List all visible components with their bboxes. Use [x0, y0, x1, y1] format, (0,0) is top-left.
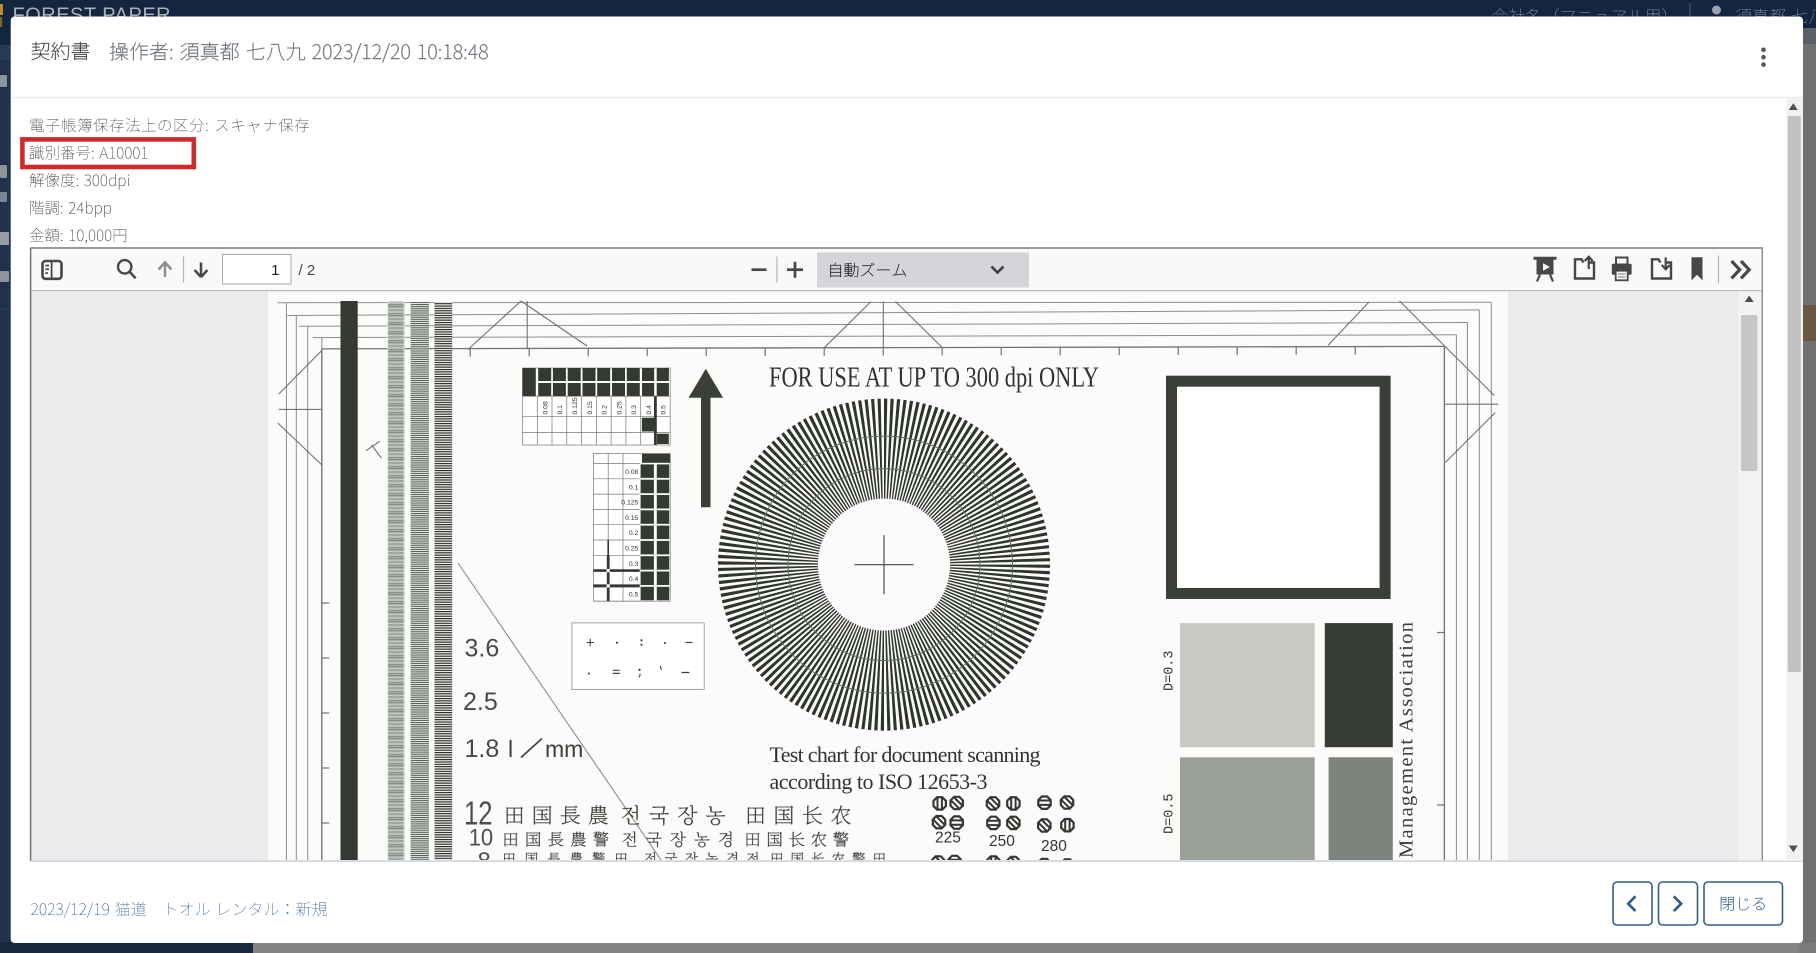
svg-text:280: 280 [1041, 838, 1067, 855]
svg-text:0.5: 0.5 [661, 405, 668, 415]
svg-text:0.08: 0.08 [625, 469, 638, 476]
svg-text:Test chart for document scanni: Test chart for document scanning [770, 742, 1041, 767]
svg-text:0.08: 0.08 [543, 401, 550, 414]
svg-text:mm: mm [545, 736, 583, 762]
svg-text:2.5: 2.5 [463, 688, 498, 716]
svg-text:250: 250 [989, 833, 1015, 850]
svg-text:0.3: 0.3 [631, 405, 638, 415]
svg-text:0.2: 0.2 [602, 405, 609, 415]
svg-text:l: l [508, 736, 513, 762]
svg-text:/ 2: / 2 [299, 262, 316, 279]
svg-text:0.4: 0.4 [629, 576, 639, 583]
svg-text:D=0.5: D=0.5 [1163, 793, 1178, 834]
svg-text:0.25: 0.25 [625, 546, 638, 553]
svg-text:0.4: 0.4 [646, 405, 653, 415]
svg-text:0.25: 0.25 [616, 401, 623, 414]
svg-text:Management Association: Management Association [1396, 622, 1418, 858]
svg-text:225: 225 [935, 830, 961, 847]
svg-text:1: 1 [271, 262, 279, 279]
svg-text:according to ISO 12653-3: according to ISO 12653-3 [770, 769, 988, 794]
svg-text:1.8: 1.8 [465, 735, 500, 763]
svg-text:0.15: 0.15 [625, 515, 638, 522]
svg-text:0.125: 0.125 [621, 500, 638, 507]
svg-text:0.15: 0.15 [587, 401, 594, 414]
svg-text:0.5: 0.5 [629, 591, 639, 598]
svg-text:0.1: 0.1 [557, 405, 564, 415]
svg-text:3.6: 3.6 [465, 635, 500, 663]
svg-text:0.2: 0.2 [629, 530, 639, 537]
svg-text:D=0.3: D=0.3 [1163, 650, 1178, 691]
svg-text:0.125: 0.125 [572, 397, 579, 414]
svg-text:FOR USE AT UP TO 300 dpi ONLY: FOR USE AT UP TO 300 dpi ONLY [769, 362, 1099, 394]
svg-text:0.1: 0.1 [629, 484, 639, 491]
svg-text:0.3: 0.3 [629, 561, 639, 568]
